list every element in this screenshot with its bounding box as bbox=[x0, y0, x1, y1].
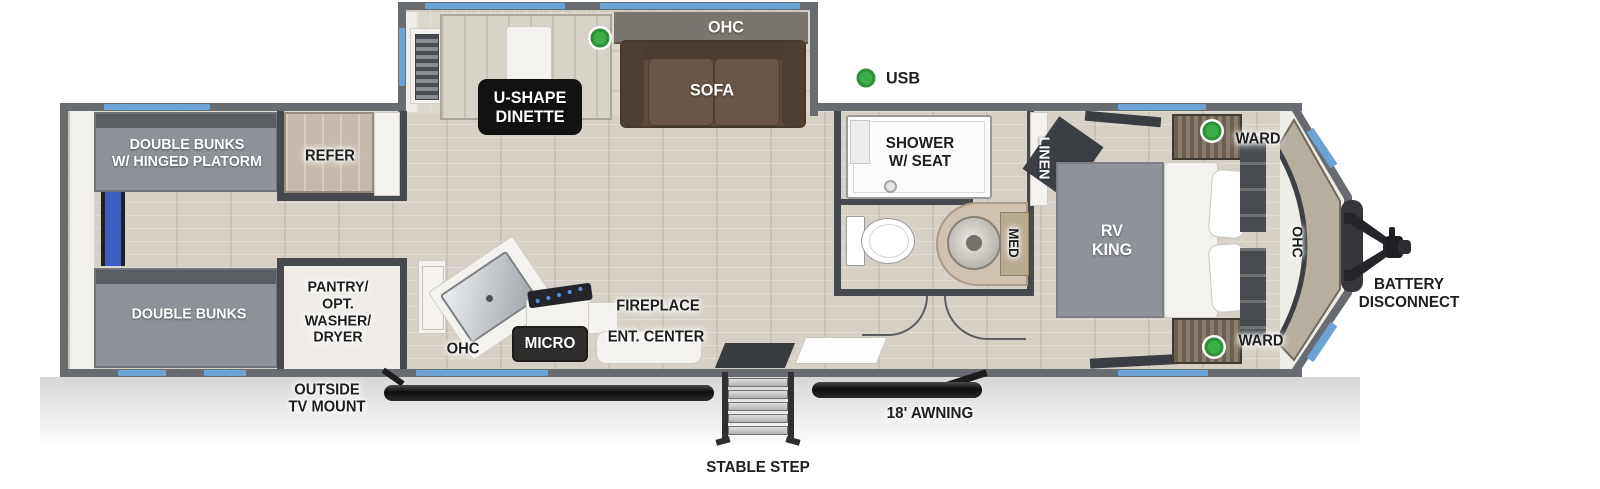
window-bunk-bottom-2 bbox=[204, 370, 246, 376]
tv-icon bbox=[415, 34, 439, 100]
awning-bar-right bbox=[812, 382, 982, 398]
bunk-top-headboard bbox=[96, 114, 276, 128]
hitch-handle bbox=[1389, 227, 1395, 239]
slide-wall-right bbox=[810, 2, 818, 116]
kitchen-ohc-label: OHC bbox=[447, 340, 480, 357]
fireplace-label: FIREPLACE bbox=[616, 297, 699, 314]
rear-wall-panel bbox=[70, 111, 95, 369]
bed-label: RVKING bbox=[1092, 221, 1132, 259]
window-kitchen-bottom bbox=[416, 370, 548, 376]
sofa-arm-right bbox=[782, 42, 804, 126]
bunk-bottom-label: DOUBLE BUNKS bbox=[132, 307, 247, 324]
sofa-arm-left bbox=[622, 42, 644, 126]
med-label: MED bbox=[1005, 228, 1021, 258]
window-bunk-top bbox=[104, 104, 210, 110]
refer-side-panel bbox=[374, 112, 400, 196]
wall-pantry-right bbox=[400, 258, 407, 369]
wall-bunks-divider-top bbox=[277, 111, 284, 201]
ent-center-label: ENT. CENTER bbox=[608, 328, 705, 345]
shower-seat bbox=[850, 120, 870, 164]
bunk-top-label: DOUBLE BUNKSW/ HINGED PLATORM bbox=[112, 137, 262, 171]
stable-step-label: STABLE STEP bbox=[706, 459, 810, 477]
bath-sink-drain-icon bbox=[966, 235, 982, 251]
awning-bar-left bbox=[384, 385, 714, 401]
wall-bath-bottom bbox=[834, 289, 1034, 296]
cap-ohc-label: OHC bbox=[1288, 226, 1305, 258]
slide-window-left bbox=[399, 28, 405, 86]
wall-shower-bottom bbox=[841, 199, 973, 205]
outside-tv-mount-label: OUTSIDETV MOUNT bbox=[289, 382, 366, 417]
usb-indicator-icon bbox=[857, 69, 876, 88]
wall-bath-left bbox=[834, 111, 841, 296]
ward-top-label: WARD bbox=[1236, 130, 1281, 147]
slide-window-top-1 bbox=[425, 3, 565, 9]
ward-bottom-label: WARD bbox=[1239, 332, 1284, 349]
entry-steps bbox=[718, 372, 798, 452]
slide-window-top-2 bbox=[600, 3, 800, 9]
awning-label: 18' AWNING bbox=[887, 405, 974, 423]
bunk-bottom-headboard bbox=[96, 270, 276, 284]
micro-label: MICRO bbox=[525, 335, 576, 353]
shower-label: SHOWERW/ SEAT bbox=[886, 135, 954, 171]
window-bedroom-top bbox=[1118, 104, 1206, 110]
front-cap-and-hitch bbox=[1280, 95, 1460, 390]
ward-top-led-indicator-icon bbox=[1203, 122, 1222, 141]
window-bedroom-bottom bbox=[1118, 370, 1208, 376]
refer-label: REFER bbox=[305, 147, 355, 164]
entry-door-panel bbox=[795, 337, 888, 364]
bunk-ladder bbox=[101, 192, 125, 266]
ward-bottom-led-indicator-icon bbox=[1205, 338, 1224, 357]
bed-shelf-bottom bbox=[1240, 248, 1266, 344]
wall-bunks-divider-bottom bbox=[277, 258, 284, 369]
pantry-label: PANTRY/OPT. WASHER/DRYER bbox=[305, 279, 372, 346]
shower-drain-icon bbox=[884, 180, 897, 193]
bed-shelf-top bbox=[1240, 136, 1266, 232]
wall-rear bbox=[60, 103, 68, 377]
wall-top-right bbox=[810, 103, 1302, 111]
toilet-bowl-inner bbox=[869, 224, 909, 258]
battery-disconnect-label: BATTERYDISCONNECT bbox=[1359, 276, 1459, 312]
rv-floorplan-diagram: U-SHAPEDINETTE OHC SOFA DOUBLE BUNKSW/ H… bbox=[0, 0, 1600, 489]
sink-drain-icon bbox=[486, 295, 493, 302]
wall-refer-right bbox=[400, 111, 407, 201]
sofa-label: SOFA bbox=[690, 80, 734, 99]
slide-ohc-label: OHC bbox=[708, 17, 744, 36]
dinette-led-indicator-icon bbox=[591, 29, 610, 48]
usb-label: USB bbox=[886, 68, 920, 87]
linen-label: LINEN bbox=[1035, 137, 1052, 180]
window-bunk-bottom-1 bbox=[118, 370, 166, 376]
wall-pantry-top bbox=[277, 258, 407, 266]
bed-mattress bbox=[1164, 162, 1218, 318]
hitch-coupler-latch bbox=[1398, 240, 1411, 254]
entry-step-well bbox=[715, 343, 795, 368]
wall-bottom bbox=[60, 369, 1302, 377]
dinette-label: U-SHAPEDINETTE bbox=[494, 88, 567, 126]
